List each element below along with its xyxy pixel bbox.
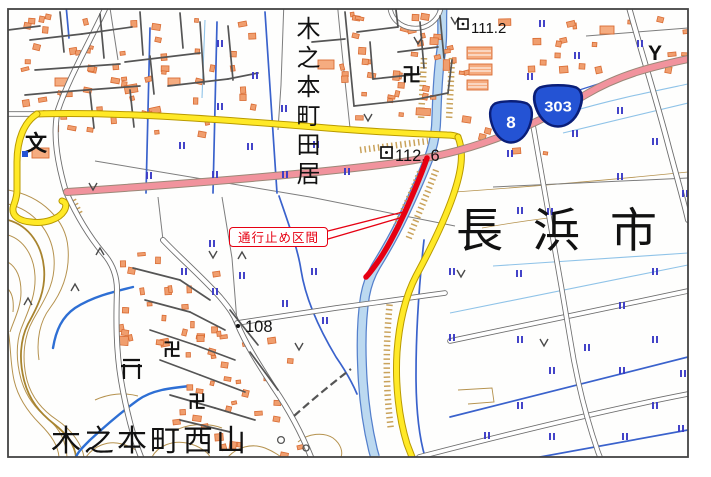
building (42, 27, 48, 34)
building (87, 127, 93, 132)
building (657, 16, 664, 22)
building (459, 71, 464, 75)
temple-icon: 卍 (402, 65, 421, 86)
building (462, 116, 471, 124)
building (198, 131, 206, 138)
building (213, 271, 221, 277)
building (240, 94, 246, 100)
building (422, 85, 429, 91)
building (210, 381, 215, 386)
building (210, 65, 215, 72)
building (528, 66, 535, 72)
building (416, 108, 431, 116)
school-icon: 文 (25, 131, 48, 156)
building (452, 58, 456, 63)
building (249, 33, 256, 39)
building (168, 286, 173, 293)
building (421, 13, 430, 20)
building (217, 331, 222, 336)
building (236, 380, 241, 384)
building (83, 18, 89, 25)
building (191, 321, 195, 327)
building (162, 315, 166, 321)
building (238, 21, 247, 27)
building (484, 128, 491, 135)
building (595, 66, 602, 74)
building (362, 59, 369, 65)
building (540, 60, 546, 65)
building (444, 49, 451, 54)
place-label-kinomoto-nishiyama: 木之本町西山 (51, 416, 249, 460)
route-number: 8 (506, 113, 515, 132)
building (155, 130, 160, 134)
building (25, 60, 30, 64)
building (512, 148, 520, 154)
building (187, 385, 193, 390)
building (38, 97, 47, 102)
building (180, 409, 186, 415)
building (122, 307, 128, 313)
building (668, 52, 676, 57)
building (592, 42, 597, 46)
large-building (168, 78, 180, 85)
building (443, 60, 449, 71)
closure-label: 通行止め区間 (229, 227, 328, 247)
building (559, 66, 568, 73)
building (120, 51, 125, 55)
building (138, 252, 146, 256)
building (182, 304, 189, 309)
building (22, 99, 30, 106)
building (240, 87, 246, 94)
building (399, 113, 404, 117)
building (555, 53, 560, 58)
building (186, 353, 190, 358)
building (111, 77, 120, 83)
building (147, 302, 152, 306)
building (356, 116, 364, 120)
building (434, 55, 441, 60)
elevation-label-112: 112. 6 (395, 147, 440, 165)
building (287, 358, 293, 363)
route-number: 303 (544, 99, 572, 115)
building (543, 151, 548, 155)
building (341, 76, 348, 83)
building (250, 104, 256, 110)
building (121, 329, 129, 336)
building (255, 411, 263, 416)
building (358, 47, 366, 54)
building (155, 257, 160, 264)
building (111, 117, 117, 124)
building (280, 452, 289, 460)
building (367, 72, 376, 78)
building (97, 107, 103, 111)
building (221, 362, 228, 368)
building (224, 377, 231, 382)
temple-icon: 卍 (188, 392, 206, 412)
building (121, 77, 126, 81)
building (362, 92, 367, 96)
building (182, 329, 188, 336)
temple-icon: 卍 (163, 340, 181, 360)
place-label-kinomoto-tai: 木之本町田居 (288, 16, 323, 190)
building (194, 18, 198, 22)
building (33, 44, 41, 51)
building (120, 261, 125, 267)
water-facility-square (22, 151, 28, 157)
mulberry-field-icon: Y (648, 42, 662, 65)
building (533, 38, 541, 45)
building (579, 64, 585, 70)
building (193, 98, 198, 104)
building (273, 416, 280, 422)
large-building (600, 26, 614, 34)
building (152, 23, 161, 30)
building (39, 16, 45, 23)
elevation-label-111: 111.2 (471, 20, 506, 37)
building (267, 337, 276, 344)
elevation-label-108: 108 (245, 318, 273, 336)
building (556, 41, 562, 47)
building (231, 401, 236, 405)
greenhouses (467, 47, 492, 90)
map-canvas[interactable]: 文 卍 卍 卍 Y 111.2 112. 6 108 8 303 (0, 0, 711, 477)
building (162, 71, 167, 75)
building (411, 52, 418, 56)
building (430, 38, 438, 45)
place-label-nagahama-city: 長浜市 (456, 192, 687, 261)
building (197, 336, 204, 342)
building (140, 288, 145, 295)
building (155, 37, 162, 43)
building (45, 14, 51, 20)
building (412, 14, 419, 21)
